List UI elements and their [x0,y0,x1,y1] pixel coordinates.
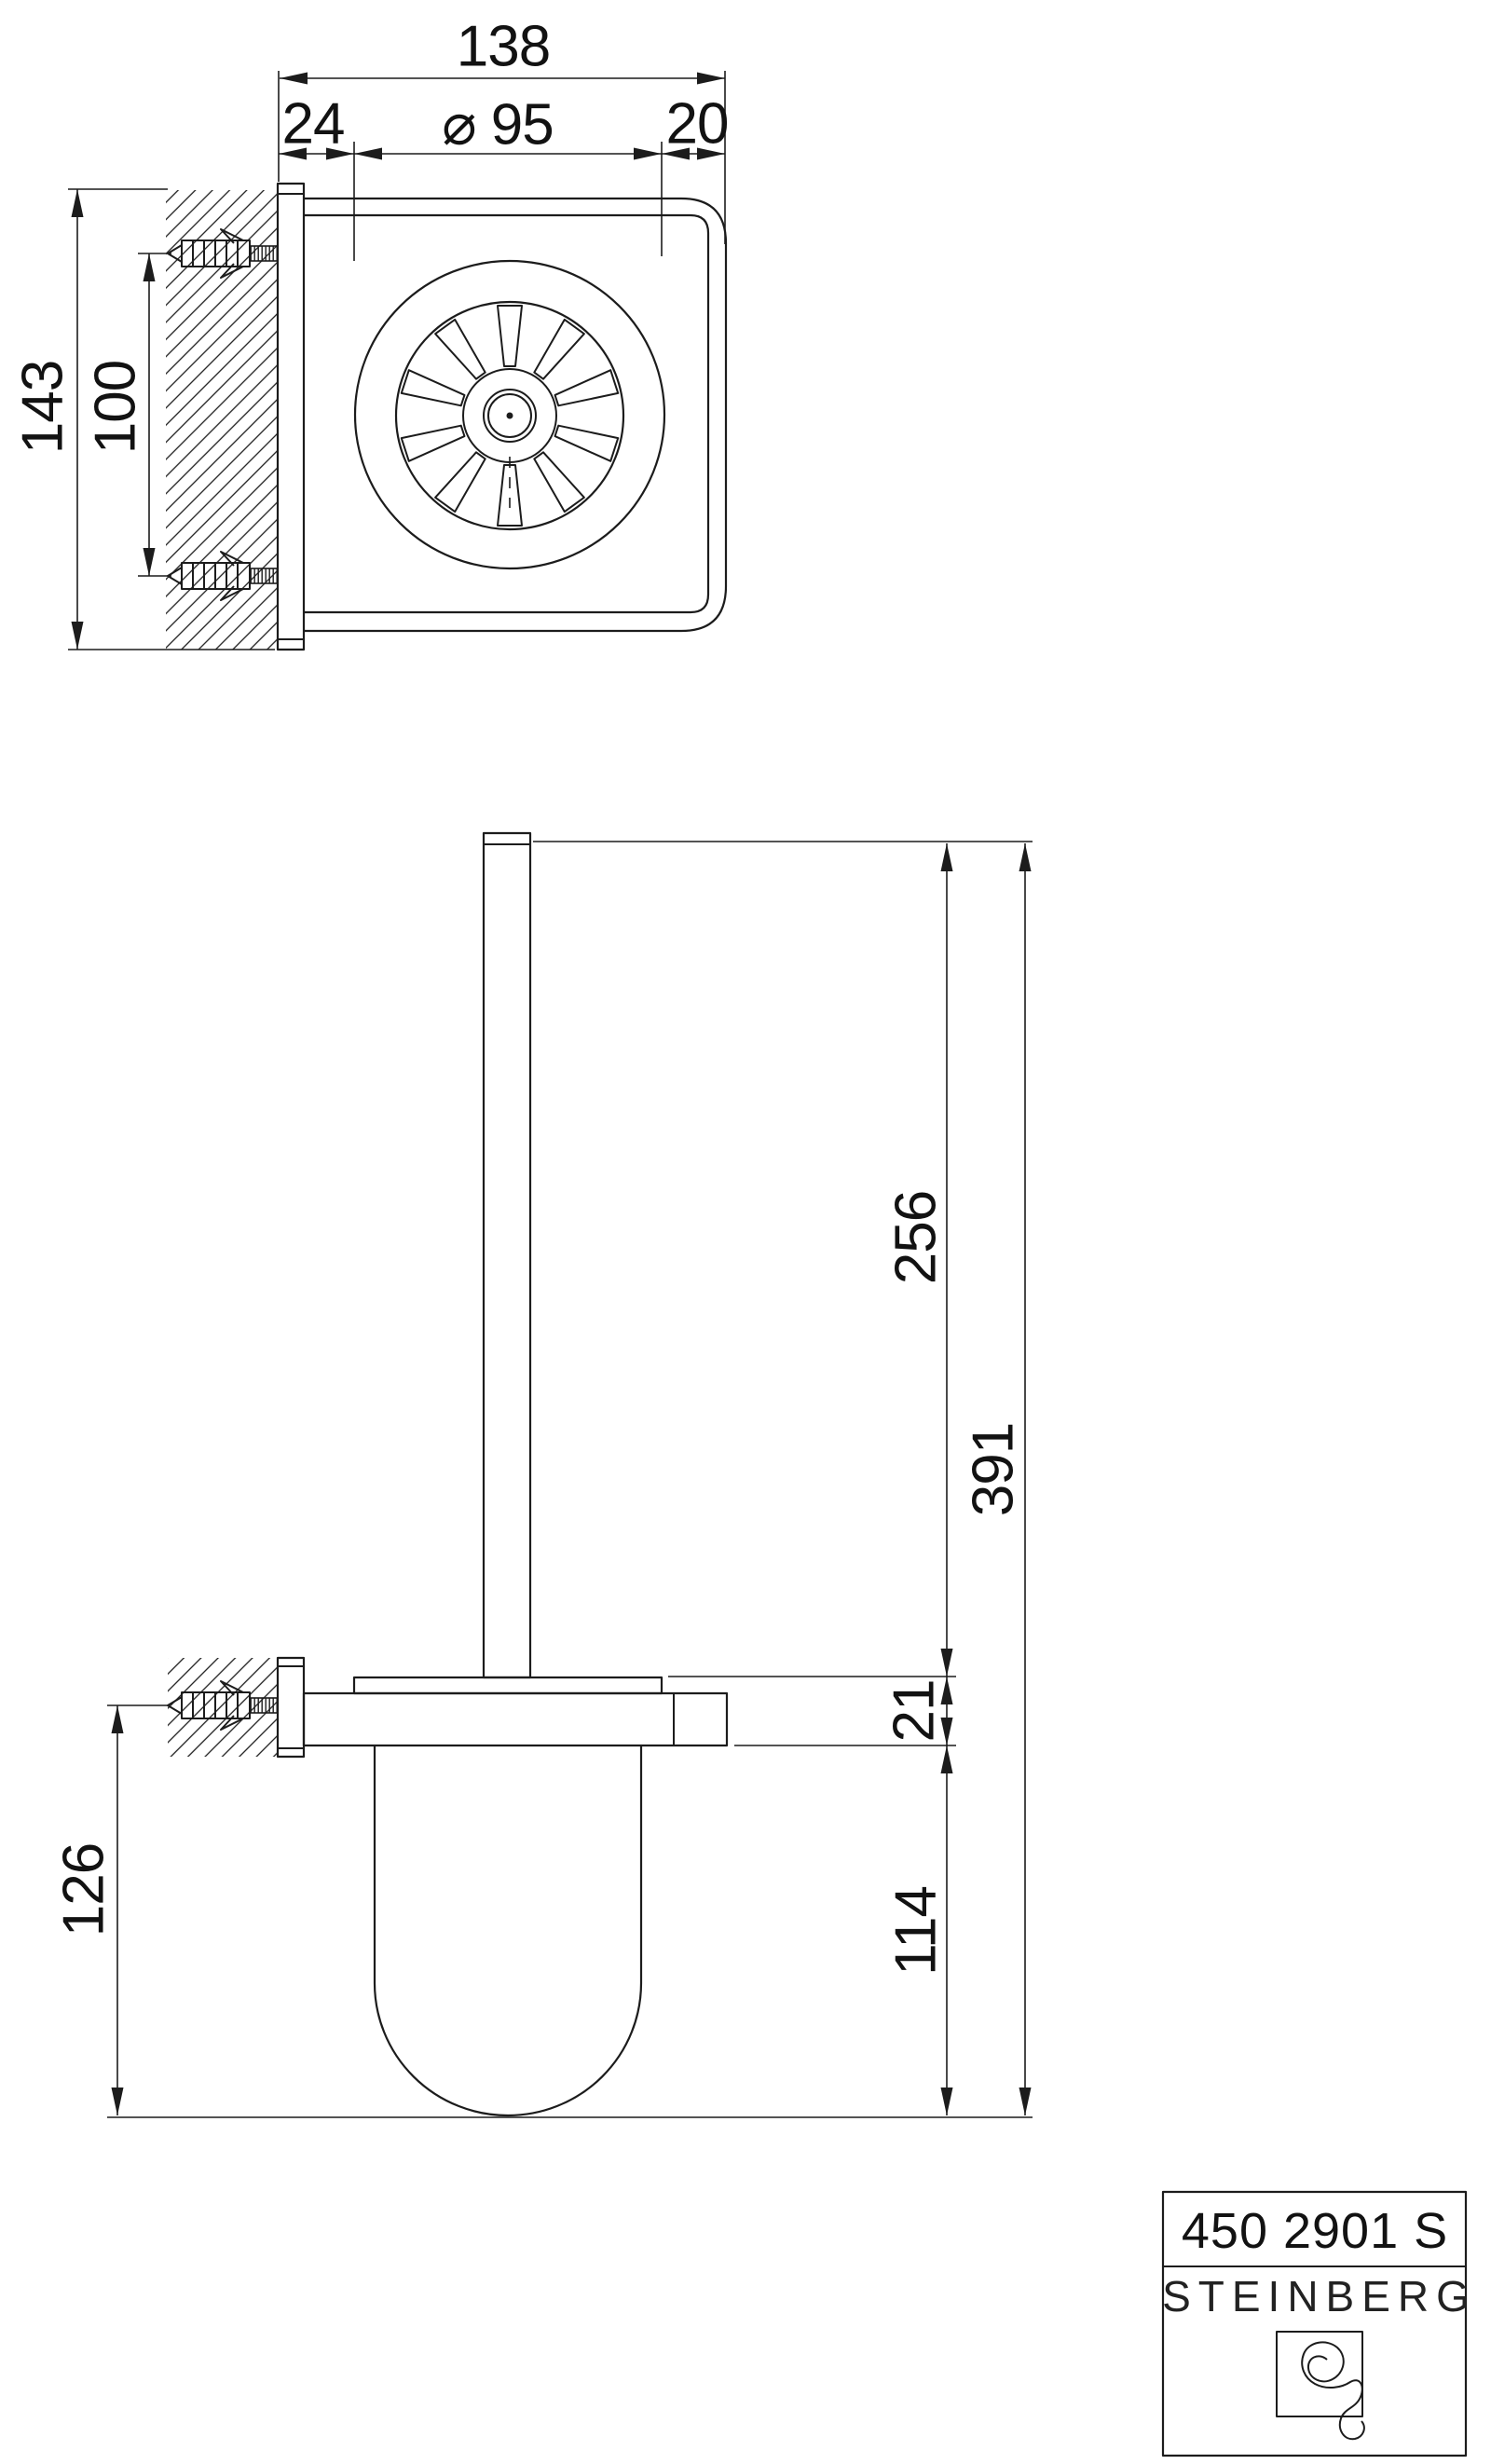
dim-cup-below-holder: 114 [884,1745,953,2115]
mounting-plate [278,1658,304,1757]
dim-screw-to-bottom: 126 [52,1705,171,2115]
dim-cup-below-holder-label: 114 [884,1886,949,1976]
dim-row-offsets: 24 ⌀ 95 20 [279,92,728,262]
glass-cup [375,1745,641,2115]
brand-name: STEINBERG [1162,2272,1477,2320]
holder-arm [304,1693,727,1745]
dim-diameter-label: ⌀ 95 [442,93,554,157]
dim-total-height-label: 391 [962,1423,1026,1516]
top-view: 138 24 ⌀ 95 20 143 [11,15,729,650]
technical-drawing: 138 24 ⌀ 95 20 143 [0,0,1491,2459]
dim-holder-thickness-label: 21 [882,1680,947,1743]
dim-offset-right-label: 20 [666,92,729,157]
dim-plate-height-label: 143 [11,361,75,454]
drawing-page: 138 24 ⌀ 95 20 143 [0,0,1491,2459]
dim-width-total-label: 138 [457,15,550,79]
cup-lid [354,1677,662,1693]
mounting-plate [278,184,304,650]
center-mark-icon [507,413,513,419]
dim-offset-left-label: 24 [282,92,345,157]
dim-screw-to-bottom-label: 126 [52,1843,116,1937]
dim-hole-spacing-label: 100 [84,361,148,454]
title-block: 450 2901 S STEINBERG [1162,2192,1477,2456]
brand-logo-icon [1277,2332,1364,2439]
holder-bracket [304,198,726,631]
dim-hole-spacing: 100 [84,253,172,576]
dim-rod-height-label: 256 [884,1191,949,1284]
dim-holder-thickness: 21 [882,1677,953,1745]
brush-head-top [396,302,623,529]
side-view: 256 21 114 391 126 [52,833,1033,2117]
model-number: 450 2901 S [1182,2203,1448,2259]
dim-total-height: 391 [962,843,1032,2115]
brush-rod [484,833,530,1677]
